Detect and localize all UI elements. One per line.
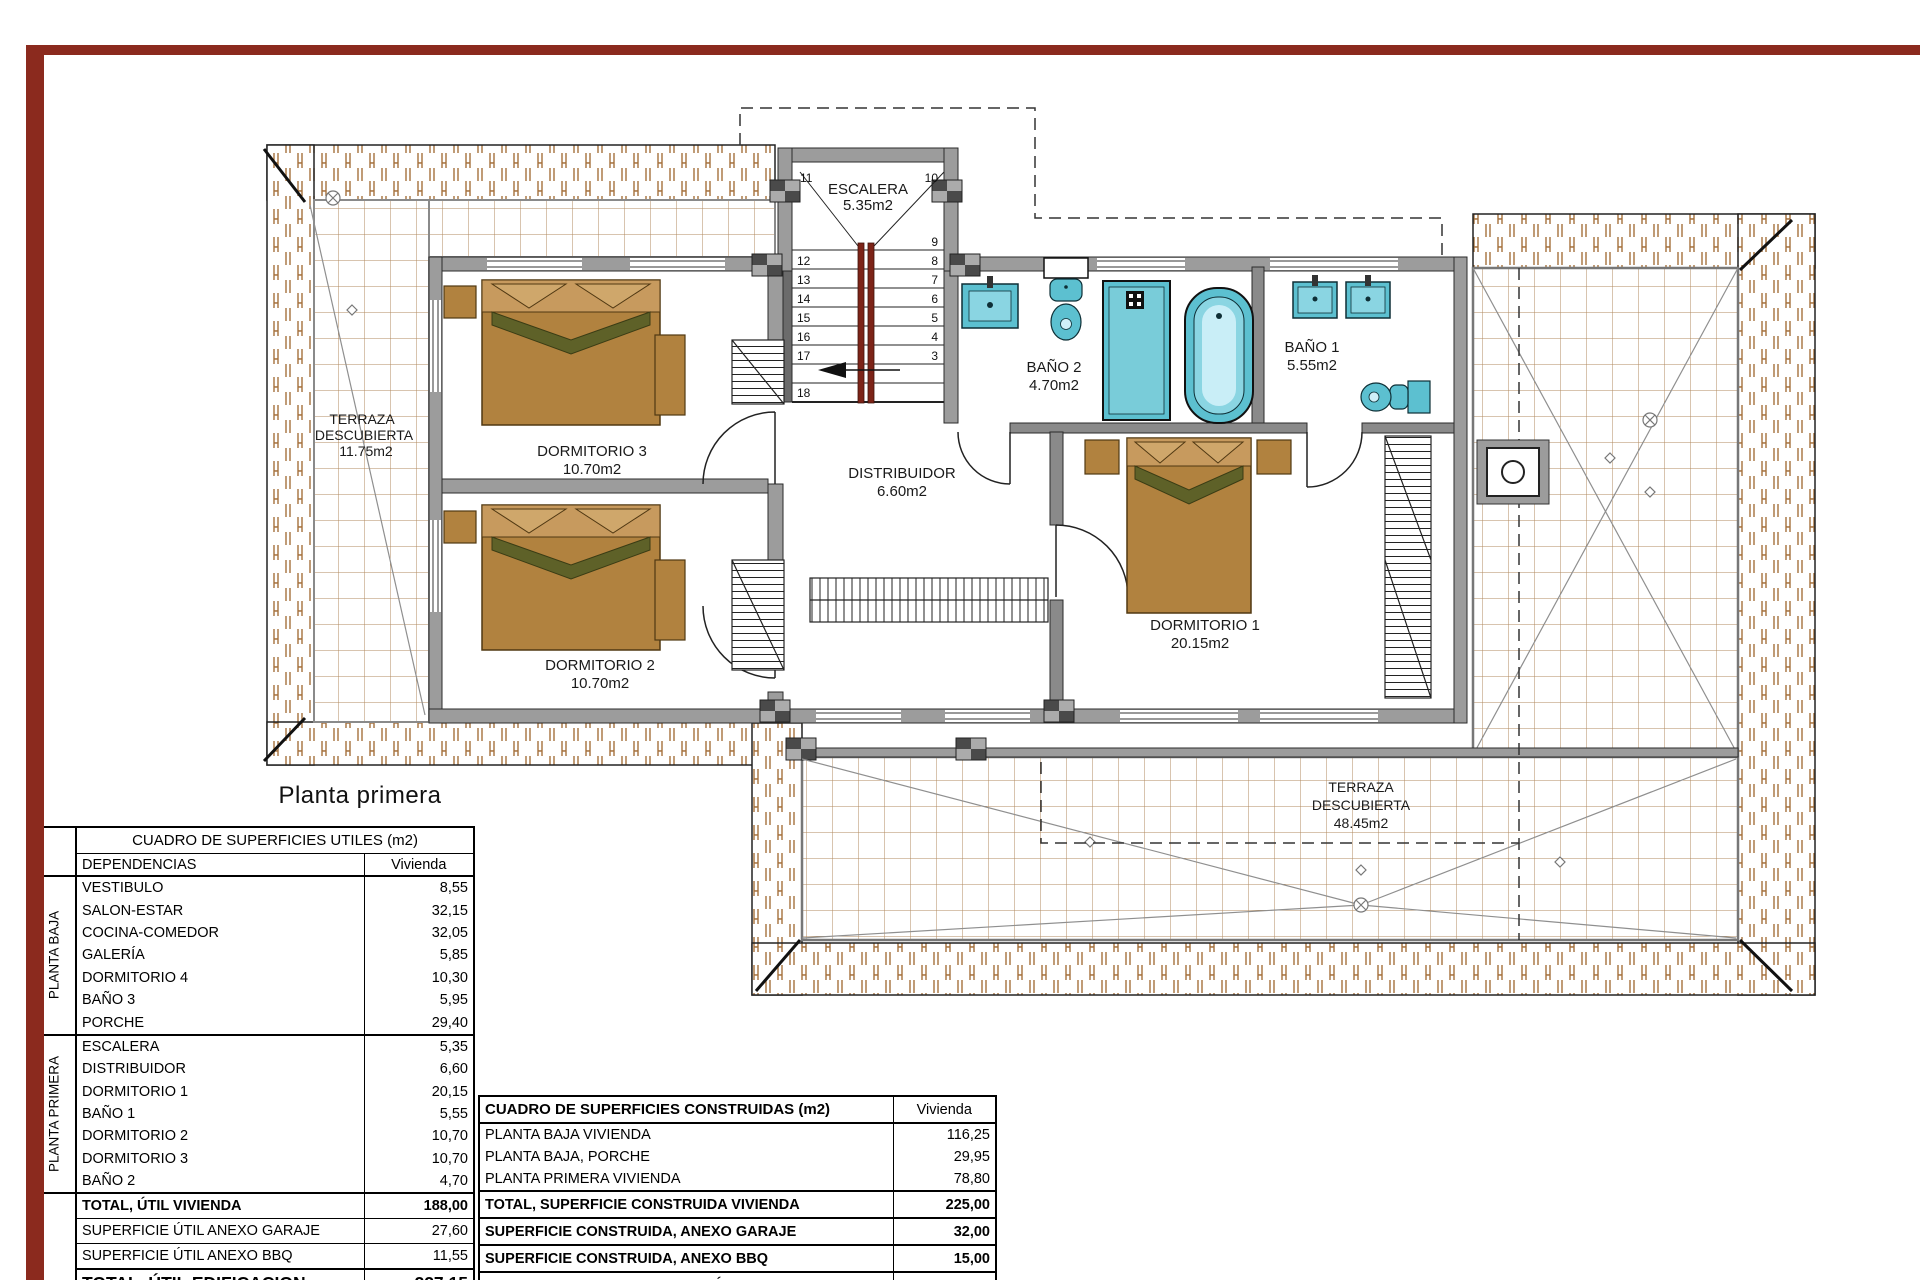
- group-label-planta-primera: PLANTA PRIMERA: [46, 1056, 61, 1172]
- table-title: CUADRO DE SUPERFICIES UTILES (m2): [76, 827, 474, 854]
- svg-text:4: 4: [931, 330, 938, 344]
- table-header-row: CUADRO DE SUPERFICIES CONSTRUIDAS (m2) V…: [479, 1096, 996, 1123]
- sink: [962, 276, 1018, 328]
- bed-dormitorio-2: [482, 505, 660, 650]
- svg-text:DESCUBIERTA: DESCUBIERTA: [315, 427, 414, 443]
- col-header-dependencias: DEPENDENCIAS: [76, 854, 364, 877]
- label-dormitorio3: DORMITORIO 3: [537, 443, 647, 460]
- sink: [1293, 275, 1337, 318]
- svg-text:7: 7: [931, 273, 938, 287]
- label-dormitorio1: DORMITORIO 1: [1150, 617, 1260, 634]
- svg-text:6: 6: [931, 292, 938, 306]
- drawing-sheet: 11 12 13 14 15 16 17 18 10 9 8 7 6 5 4 3: [0, 0, 1920, 1280]
- table-row: SUPERFICIE CONSTRUIDA, ANEXO GARAJE 32,0…: [479, 1218, 996, 1245]
- svg-text:10: 10: [925, 171, 939, 185]
- shower: [1103, 281, 1170, 420]
- svg-text:5.55m2: 5.55m2: [1287, 357, 1337, 374]
- label-bano1: BAÑO 1: [1284, 339, 1339, 356]
- table-row: DISTRIBUIDOR6,60: [31, 1058, 474, 1080]
- svg-text:4.70m2: 4.70m2: [1029, 377, 1079, 394]
- svg-text:DESCUBIERTA: DESCUBIERTA: [1312, 797, 1411, 813]
- table-row: GALERÍA5,85: [31, 944, 474, 966]
- svg-text:9: 9: [931, 235, 938, 249]
- table-superficies-utiles: CUADRO DE SUPERFICIES UTILES (m2) DEPEND…: [30, 826, 475, 1280]
- svg-text:10.70m2: 10.70m2: [563, 461, 621, 478]
- label-distribuidor: DISTRIBUIDOR: [848, 465, 956, 482]
- svg-text:13: 13: [797, 273, 811, 287]
- bed-dormitorio-1: [1127, 438, 1251, 613]
- table-row: BAÑO 35,95: [31, 989, 474, 1011]
- table-row: COCINA-COMEDOR32,05: [31, 922, 474, 944]
- svg-text:48.45m2: 48.45m2: [1334, 815, 1389, 831]
- label-dormitorio2: DORMITORIO 2: [545, 657, 655, 674]
- toilet: [1044, 258, 1088, 340]
- bathtub: [1185, 288, 1253, 423]
- table-total-row: TOTAL, ÚTIL VIVIENDA 188,00: [31, 1193, 474, 1219]
- terrace-bottom: [752, 723, 1815, 995]
- group-label-planta-baja: PLANTA BAJA: [46, 911, 61, 999]
- stair-rail: [858, 243, 864, 403]
- table-total-row: TOTAL, ÚTIL EDIFICACION 227,15: [31, 1269, 474, 1280]
- label-escalera: ESCALERA: [828, 181, 908, 198]
- table-row: BAÑO 24,70: [31, 1170, 474, 1193]
- table-row: PORCHE29,40: [31, 1011, 474, 1034]
- sheet-border-top: [26, 45, 1920, 55]
- sheet-border-left: [26, 45, 44, 1280]
- table-row: DORMITORIO 410,30: [31, 967, 474, 989]
- table-total-row: TOTAL, CONSTRUIDA EDIFICACIÓN 272,00: [479, 1272, 996, 1280]
- svg-text:16: 16: [797, 330, 811, 344]
- table-row: PLANTA BAJA VESTIBULO8,55: [31, 876, 474, 899]
- svg-text:15: 15: [797, 311, 811, 325]
- bathroom-fixtures: [962, 258, 1430, 423]
- table-row: SUPERFICIE ÚTIL ANEXO GARAJE 27,60: [31, 1219, 474, 1244]
- label-terraza-inf: TERRAZA: [1328, 779, 1394, 795]
- table-row: PLANTA PRIMERA ESCALERA5,35: [31, 1035, 474, 1058]
- chimney: [1477, 440, 1549, 504]
- table-row: PLANTA BAJA VIVIENDA 116,25: [479, 1123, 996, 1146]
- svg-text:11: 11: [800, 171, 813, 185]
- toilet: [1361, 381, 1430, 413]
- table-title: CUADRO DE SUPERFICIES CONSTRUIDAS (m2): [479, 1096, 893, 1123]
- svg-text:11.75m2: 11.75m2: [339, 443, 393, 459]
- svg-text:20.15m2: 20.15m2: [1171, 635, 1229, 652]
- table-row: BAÑO 15,55: [31, 1103, 474, 1125]
- col-header-vivienda: Vivienda: [893, 1096, 996, 1123]
- table-header-row: DEPENDENCIAS Vivienda: [31, 854, 474, 877]
- table-row: SALON-ESTAR32,15: [31, 899, 474, 921]
- table-row: CUADRO DE SUPERFICIES UTILES (m2): [31, 827, 474, 854]
- svg-text:8: 8: [931, 254, 938, 268]
- table-row: DORMITORIO 120,15: [31, 1081, 474, 1103]
- sink: [1346, 275, 1390, 318]
- svg-text:3: 3: [931, 349, 938, 363]
- label-terraza-izq: TERRAZA: [329, 411, 395, 427]
- wardrobes: [732, 340, 1431, 698]
- table-row: DORMITORIO 210,70: [31, 1125, 474, 1147]
- table-row: PLANTA BAJA, PORCHE 29,95: [479, 1146, 996, 1168]
- svg-text:14: 14: [797, 292, 811, 306]
- table-row: SUPERFICIE ÚTIL ANEXO BBQ 11,55: [31, 1244, 474, 1270]
- bed-dormitorio-3: [482, 280, 660, 425]
- svg-text:12: 12: [797, 254, 811, 268]
- plan-title: Planta primera: [238, 782, 482, 810]
- col-header-vivienda: Vivienda: [364, 854, 474, 877]
- table-total-row: TOTAL, SUPERFICIE CONSTRUIDA VIVIENDA 22…: [479, 1191, 996, 1218]
- svg-text:10.70m2: 10.70m2: [571, 675, 629, 692]
- table-superficies-construidas: CUADRO DE SUPERFICIES CONSTRUIDAS (m2) V…: [478, 1095, 997, 1280]
- label-bano2: BAÑO 2: [1026, 359, 1081, 376]
- table-row: SUPERFICIE CONSTRUIDA, ANEXO BBQ 15,00: [479, 1245, 996, 1272]
- svg-text:17: 17: [797, 349, 811, 363]
- table-row: PLANTA PRIMERA VIVIENDA 78,80: [479, 1168, 996, 1191]
- svg-text:6.60m2: 6.60m2: [877, 483, 927, 500]
- table-row: DORMITORIO 310,70: [31, 1148, 474, 1170]
- svg-text:5: 5: [931, 311, 938, 325]
- svg-text:5.35m2: 5.35m2: [843, 197, 893, 214]
- svg-text:18: 18: [797, 386, 811, 400]
